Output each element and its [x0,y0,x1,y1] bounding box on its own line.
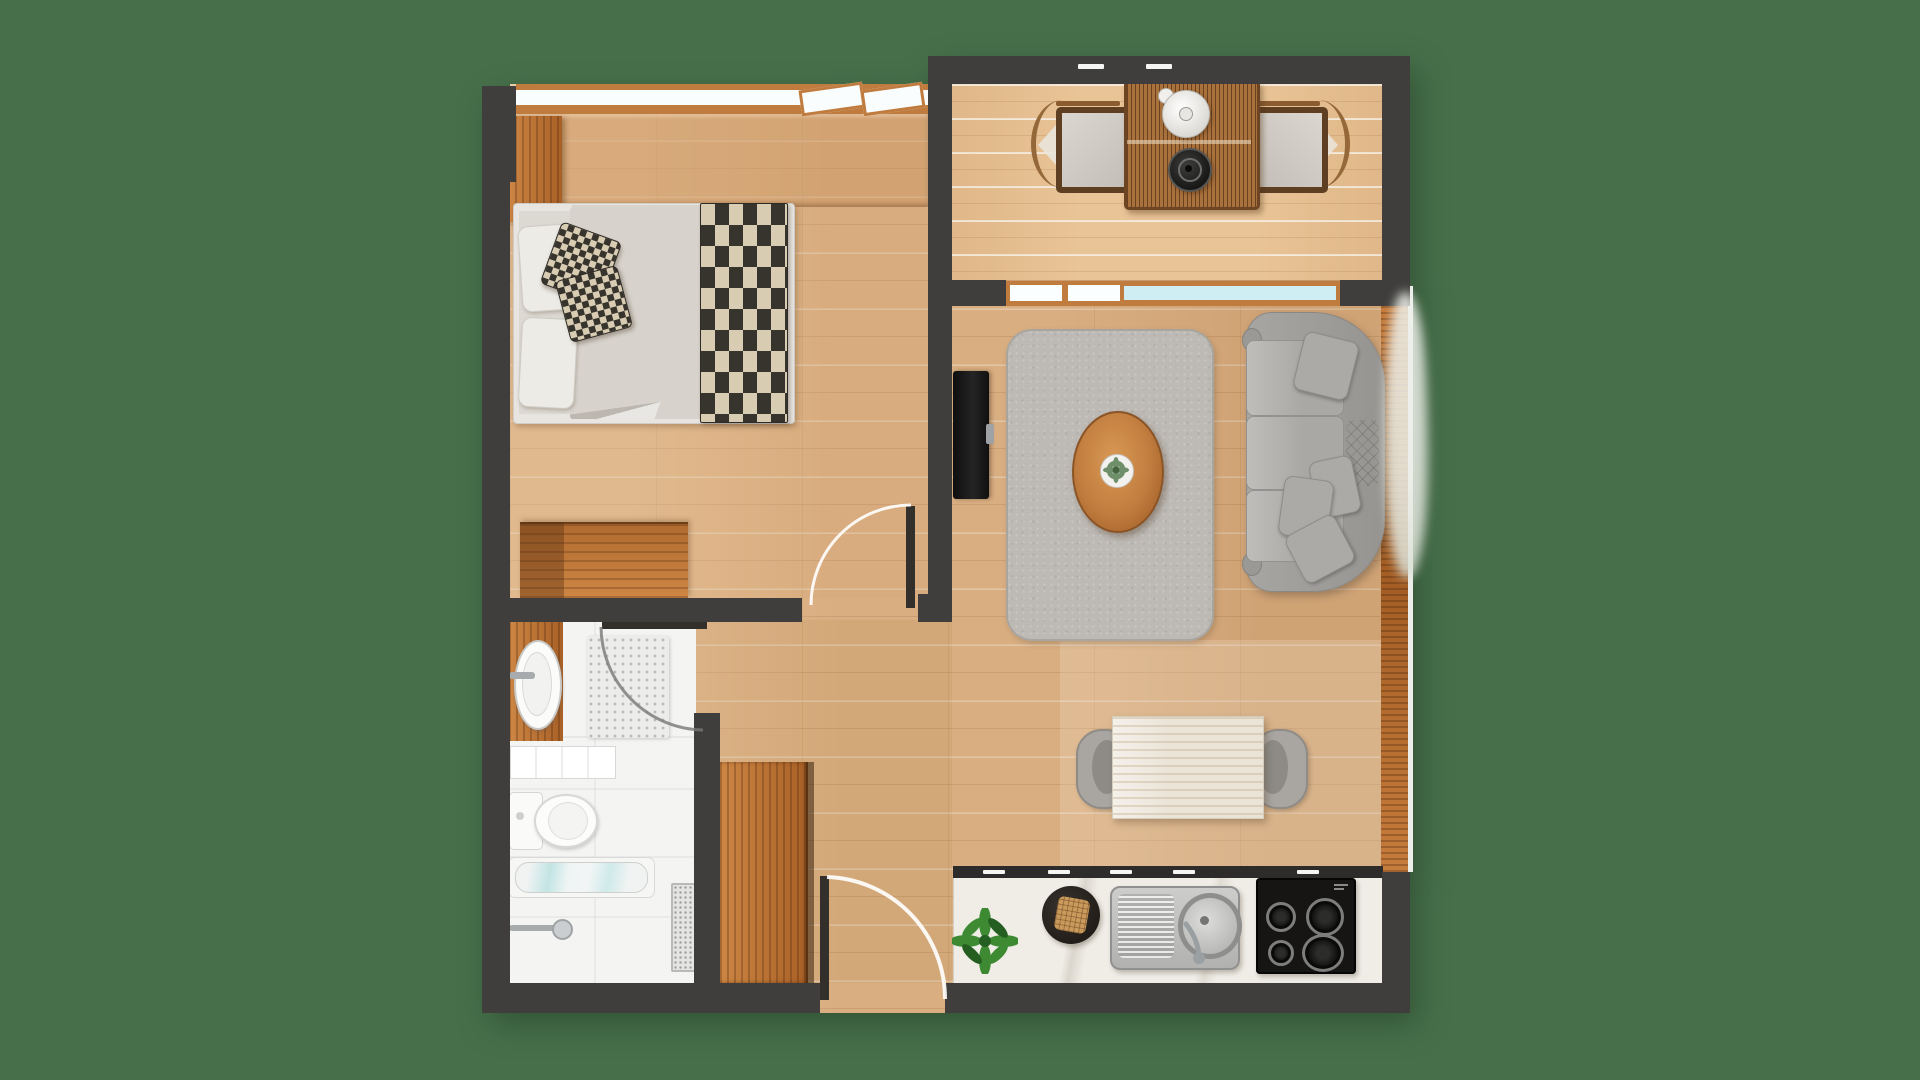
succulent-plant [1102,456,1130,484]
toilet-flush-button [516,812,524,820]
window-pane [1010,285,1062,301]
cabinet-handle [1173,870,1195,874]
basin-bowl [522,652,552,716]
cabinet-handle [1297,870,1319,874]
toilet-seat [548,802,588,840]
burner [1268,940,1294,966]
burner [1302,934,1344,972]
wall-right-upper [1382,56,1410,286]
tv-screen [953,371,989,499]
towel-rail [509,925,557,931]
table-divider [1127,140,1251,144]
apartment-plan [0,0,1920,1080]
wall-bathroom-right [694,713,720,983]
cabinet-handle [1110,870,1132,874]
bathroom-shelf [510,746,616,779]
wall-vent [1146,64,1172,69]
kettle-knob [1185,165,1192,172]
wall-vent [1078,64,1104,69]
wall-bedroom-right [928,84,952,620]
balcony-chair-left [1056,107,1130,193]
cabinet-handle [983,870,1005,874]
shower-mat [587,636,669,738]
bedroom-door-leaf [906,506,915,608]
burner [1266,902,1296,932]
window-glazing [1124,286,1336,300]
chair-arm-rail [1256,101,1320,106]
cooktop-controls [1334,888,1344,890]
basin-faucet [509,672,535,679]
sink-drainboard [1118,894,1174,958]
tv-mount [986,424,994,444]
wall-balcony-top [928,56,1410,84]
herb-plant [952,908,1018,974]
towel-rail-knob [552,919,573,940]
sink-bowl [1178,893,1242,959]
cooktop-controls [1334,884,1348,886]
wall-corner-top-left [482,86,516,182]
wall-left [482,86,510,1013]
bed-headboard-panel [510,114,928,207]
burner [1306,898,1344,936]
hallway-tall-cabinet [720,762,808,983]
cabinet-handle [1048,870,1070,874]
checkered-throw [700,203,788,423]
wall-bottom-left [482,983,820,1013]
bathtub-basin [515,862,648,893]
chair-arm-rail [1056,101,1120,106]
entrance-door-leaf [820,876,829,1000]
teapot-lid-knob [1179,107,1193,121]
cabinet-shadow-edge [806,762,814,983]
wall-bottom-right [945,983,1410,1013]
bread-loaf [1053,895,1090,934]
wall-bedroom-bottom [482,598,802,622]
floor-plan-canvas [0,0,1920,1080]
balcony-chair-right [1254,107,1328,193]
dining-table [1112,716,1264,819]
sink-drain [1200,916,1209,925]
window-pane [1068,285,1120,301]
dresser-dark-section [520,522,564,598]
